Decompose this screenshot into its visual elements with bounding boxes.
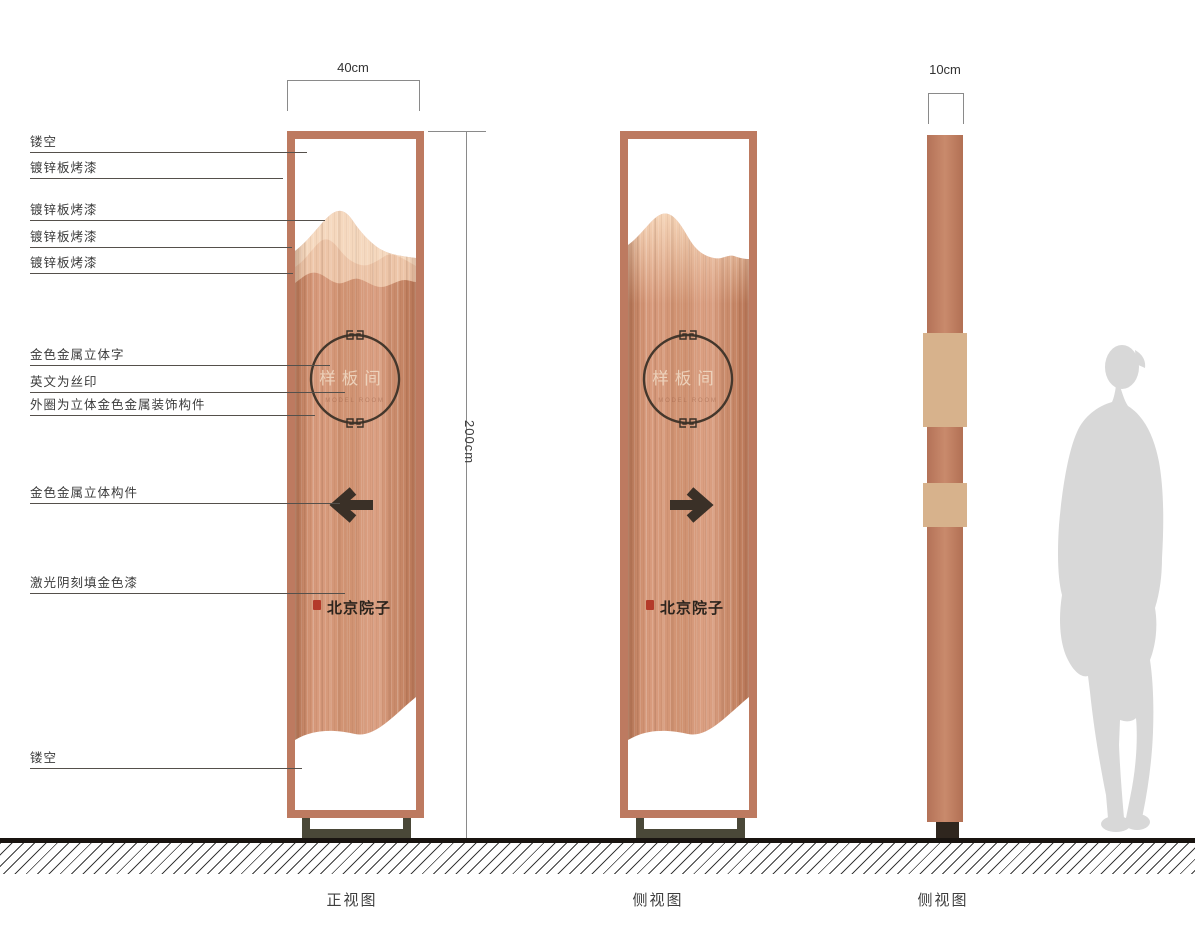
callout-galvanized-3: 镀锌板烤漆 [30, 229, 292, 248]
callout-hollow-top: 镂空 [30, 134, 307, 153]
side-view-sign: 样板间 MODEL ROOM 北京院子 [620, 131, 757, 818]
red-seal-icon [646, 600, 654, 610]
profile-base-block [936, 822, 959, 839]
callout-label: 镀锌板烤漆 [30, 199, 98, 218]
brand-logo-text: 北京院子 [327, 599, 391, 617]
dim-side-thickness-label: 10cm [929, 62, 961, 77]
ground-hatch [0, 843, 1195, 874]
arrow-left-icon [337, 491, 373, 519]
sign-subtitle-en: MODEL ROOM [658, 398, 717, 404]
dim-height-tick [428, 131, 486, 132]
dim-height-line [466, 132, 467, 838]
front-view-base [302, 818, 411, 838]
caption-profile-view: 侧视图 [917, 889, 968, 910]
callout-label: 镀锌板烤漆 [30, 252, 98, 271]
callout-label: 激光阴刻填金色漆 [30, 572, 138, 591]
callout-hollow-bottom: 镂空 [30, 750, 302, 769]
front-panel-graphics: 样板间 MODEL ROOM 北京院子 [295, 139, 416, 810]
callout-gold-3d-letters: 金色金属立体字 [30, 347, 330, 366]
callout-label: 镀锌板烤漆 [30, 157, 98, 176]
callout-gold-3d-component: 金色金属立体构件 [30, 485, 340, 504]
callout-label: 英文为丝印 [30, 371, 98, 390]
caption-side-view: 侧视图 [632, 889, 683, 910]
dim-height-label: 200cm [462, 420, 477, 464]
hollow-top-cutout [628, 139, 749, 259]
sign-subtitle-en: MODEL ROOM [325, 398, 384, 404]
profile-arrow-protrusion [923, 483, 967, 527]
callout-laser-engraved: 激光阴刻填金色漆 [30, 575, 345, 594]
callout-galvanized-4: 镀锌板烤漆 [30, 255, 293, 274]
side-panel: 样板间 MODEL ROOM 北京院子 [628, 139, 749, 810]
front-panel: 样板间 MODEL ROOM 北京院子 [295, 139, 416, 810]
callout-galvanized-1: 镀锌板烤漆 [30, 160, 283, 179]
profile-view-column [927, 135, 963, 822]
callout-galvanized-2: 镀锌板烤漆 [30, 202, 325, 221]
arrow-right-icon [670, 491, 706, 519]
callout-label: 镂空 [30, 747, 57, 766]
side-panel-graphics: 样板间 MODEL ROOM 北京院子 [628, 139, 749, 810]
dim-front-width-label: 40cm [337, 60, 369, 75]
person-silhouette [1032, 340, 1192, 837]
callout-label: 金色金属立体字 [30, 344, 125, 363]
sign-title-text: 样板间 [652, 369, 720, 388]
side-view-base [636, 818, 745, 838]
brand-logo-text: 北京院子 [660, 599, 724, 617]
caption-front-view: 正视图 [326, 889, 377, 910]
front-view-sign: 样板间 MODEL ROOM 北京院子 [287, 131, 424, 818]
red-seal-icon [313, 600, 321, 610]
profile-ring-protrusion [923, 333, 967, 427]
hollow-bottom-cutout [628, 697, 749, 810]
callout-label: 镂空 [30, 131, 57, 150]
callout-label: 金色金属立体构件 [30, 482, 138, 501]
hollow-top-cutout [295, 139, 416, 258]
dim-side-thickness-bracket [928, 93, 964, 124]
signage-spec-drawing: 镂空 镀锌板烤漆 镀锌板烤漆 镀锌板烤漆 镀锌板烤漆 金色金属立体字 英文为丝印… [0, 0, 1195, 927]
callout-label: 外圈为立体金色金属装饰构件 [30, 394, 206, 413]
callout-english-silkscreen: 英文为丝印 [30, 374, 345, 393]
callout-label: 镀锌板烤漆 [30, 226, 98, 245]
hollow-bottom-cutout [295, 697, 416, 810]
dim-front-width-bracket [287, 80, 420, 111]
callout-outer-ring: 外圈为立体金色金属装饰构件 [30, 397, 315, 416]
